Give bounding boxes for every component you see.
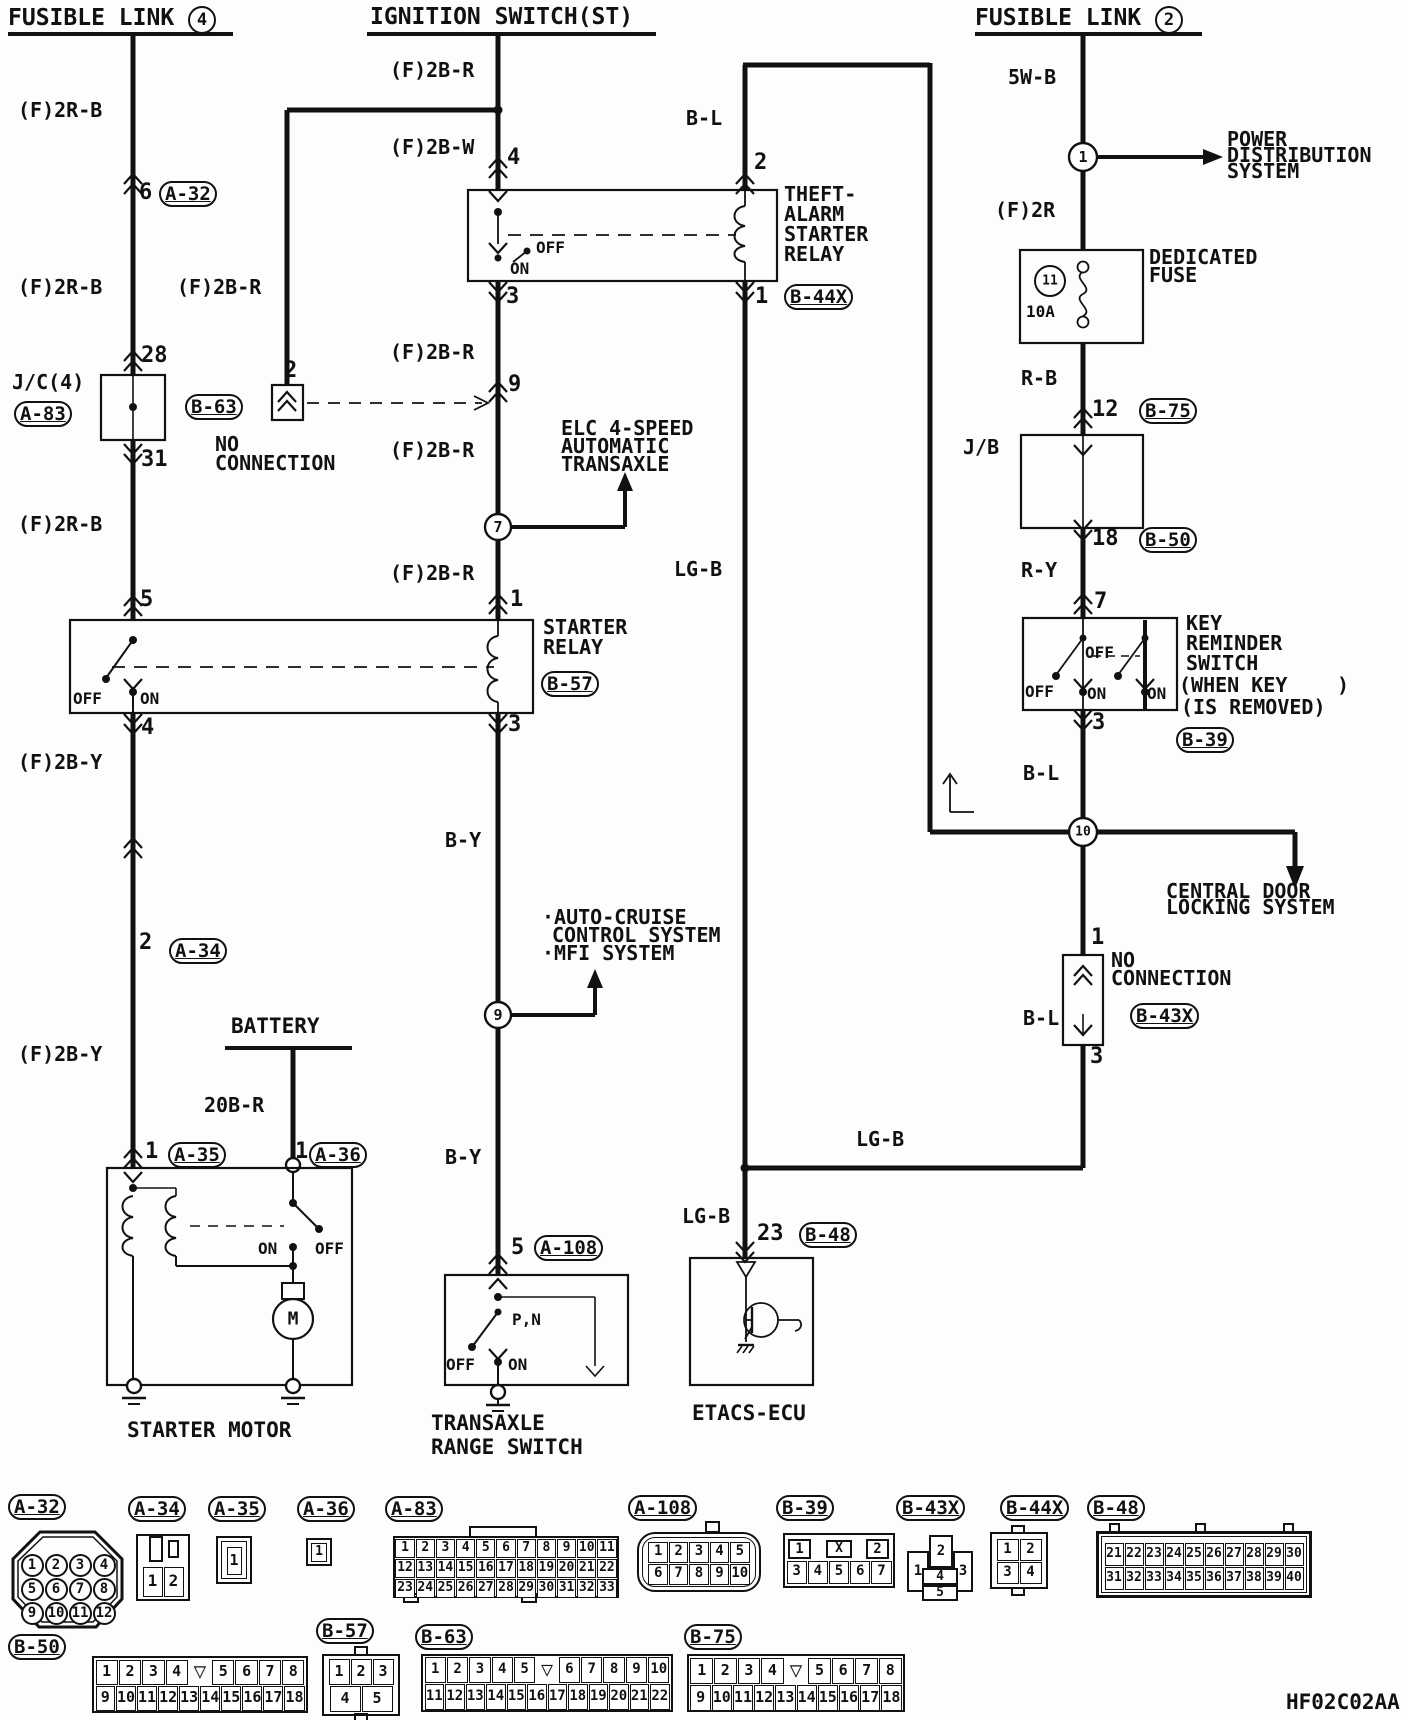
- pin-cell: 23: [1145, 1543, 1164, 1566]
- pin-cell: 26: [1205, 1543, 1224, 1566]
- connector-label-a108: A-108: [628, 1495, 697, 1521]
- transaxle-box: [445, 1275, 628, 1411]
- connector-b48-pins: 2122232425262728293031323334353637383940: [1104, 1542, 1304, 1590]
- pin-cell: 26: [456, 1579, 475, 1598]
- pin-cell: 24: [416, 1579, 435, 1598]
- connector-a108-pins: 12345678910: [648, 1541, 750, 1585]
- connector-label-b75: B-75: [684, 1624, 742, 1650]
- switch-off-label: OFF: [1025, 684, 1054, 700]
- junction-7: 7: [493, 518, 502, 536]
- pin-number: 1: [510, 589, 523, 611]
- pin-cell: 25: [436, 1579, 455, 1598]
- pin-cell: 34: [1165, 1567, 1184, 1590]
- pin-cell: ▽: [785, 1658, 808, 1684]
- pin-number: 1: [295, 1141, 308, 1163]
- pin-cell: 21: [1105, 1543, 1124, 1566]
- pin-number: 12: [1092, 399, 1119, 421]
- pin-cell: 3: [436, 1539, 455, 1558]
- circled-4: 4: [188, 6, 216, 34]
- connector-label-b39: B-39: [776, 1495, 834, 1521]
- pin-cell: 5: [808, 1658, 831, 1684]
- left-wire: [101, 34, 165, 1168]
- pin-cell: 17: [548, 1684, 568, 1710]
- pin-number: 9: [508, 374, 521, 396]
- pin-cell: 9: [21, 1602, 44, 1625]
- pin-cell: 32: [1125, 1567, 1144, 1590]
- pin-number: 18: [1092, 528, 1119, 550]
- pin-cell: 2: [447, 1657, 468, 1683]
- wire-label: (F)2R: [995, 200, 1055, 220]
- connector-label-a34: A-34: [128, 1496, 186, 1522]
- connector-label-a36: A-36: [297, 1496, 355, 1522]
- starter-motor-label: STARTER MOTOR: [127, 1420, 291, 1441]
- connector-label-a83: A-83: [385, 1496, 443, 1522]
- pin-number: 31: [141, 449, 168, 471]
- connector-b75-pins: 1234▽56789101112131415161718: [690, 1657, 902, 1711]
- pin-cell: 9: [626, 1657, 647, 1683]
- pin-cell: 6: [648, 1564, 667, 1585]
- battery-label: BATTERY: [231, 1016, 320, 1037]
- wire-label: (F)2B-Y: [18, 752, 102, 772]
- pin-cell: 24: [1165, 1543, 1184, 1566]
- pin-cell: 5: [922, 1585, 958, 1601]
- pin-cell: 9: [557, 1539, 576, 1558]
- pin-cell: 8: [603, 1657, 624, 1683]
- pin-number: 23: [757, 1223, 784, 1245]
- pin-cell: 8: [537, 1539, 556, 1558]
- wire-label: (F)2R-B: [18, 514, 102, 534]
- wire-label: (F)2B-R: [177, 277, 261, 297]
- wire-label: (F)2B-R: [390, 60, 474, 80]
- wire-label: (F)2B-R: [390, 342, 474, 362]
- pin-number: 2: [284, 360, 297, 382]
- pin-cell: 33: [1145, 1567, 1164, 1590]
- pin-cell: 9: [96, 1686, 115, 1711]
- connector-label-b63: B-63: [415, 1624, 473, 1650]
- relay-on-label: ON: [510, 261, 529, 277]
- pin-cell: 11: [137, 1686, 157, 1711]
- pin-cell: 3: [997, 1562, 1019, 1584]
- pin-cell: 13: [466, 1684, 486, 1710]
- pin-cell: 4: [492, 1657, 513, 1683]
- pin-cell: 29: [1265, 1543, 1284, 1566]
- elc-system-label: TRANSAXLE: [561, 454, 669, 474]
- pin-cell: 25: [1185, 1543, 1204, 1566]
- pin-cell: 13: [775, 1685, 795, 1711]
- pin-cell: 10: [45, 1602, 68, 1625]
- pin-cell: 2: [351, 1659, 372, 1685]
- pin-cell: 1: [648, 1542, 667, 1563]
- pin-cell: 4: [330, 1686, 361, 1712]
- pin-cell: 22: [597, 1559, 616, 1578]
- connector-b63-pins: 12345▽678910111213141516171819202122: [424, 1656, 670, 1710]
- pin-cell: 15: [456, 1559, 475, 1578]
- pin-cell: 7: [581, 1657, 602, 1683]
- pin-cell: 7: [259, 1660, 281, 1685]
- pin-cell: 12: [445, 1684, 465, 1710]
- pin-cell: 3: [787, 1561, 807, 1584]
- pin-cell: 6: [832, 1658, 855, 1684]
- pin-cell: 1: [227, 1547, 242, 1575]
- pin-cell: 4: [93, 1554, 116, 1577]
- pin-cell: 11: [425, 1684, 445, 1710]
- theft-relay-name: THEFT-: [784, 184, 856, 204]
- pin-cell: 13: [416, 1559, 435, 1578]
- pin-cell: 8: [282, 1660, 304, 1685]
- pin-cell: 16: [476, 1559, 495, 1578]
- pin-cell: 2: [714, 1658, 737, 1684]
- pin-cell: 40: [1285, 1567, 1304, 1590]
- wire-label: (F)2R-B: [18, 277, 102, 297]
- connector-ref-b75: B-75: [1139, 398, 1197, 424]
- connector-a35-pins: 1: [226, 1546, 242, 1575]
- pin-cell: 36: [1205, 1567, 1224, 1590]
- fuse-amp-label: 10A: [1026, 304, 1055, 320]
- no-connection-label: CONNECTION: [215, 453, 335, 473]
- pin-cell: 5: [362, 1686, 393, 1712]
- wire-label: (F)2B-R: [390, 563, 474, 583]
- pin-cell: 29: [517, 1579, 536, 1598]
- pin-cell: 4: [710, 1542, 729, 1563]
- pin-cell: 27: [476, 1579, 495, 1598]
- relay-off-label: OFF: [73, 691, 102, 707]
- motor-off-label: OFF: [315, 1241, 344, 1257]
- bl-wire: [743, 63, 930, 832]
- pin-cell: 4: [456, 1539, 475, 1558]
- connector-ref-a108: A-108: [534, 1235, 603, 1261]
- motor-m: M: [288, 1309, 299, 1330]
- pin-cell: 1: [425, 1657, 446, 1683]
- theft-relay-name: ALARM: [784, 204, 844, 224]
- pin-cell: 1: [311, 1543, 327, 1562]
- wire-label: 20B-R: [204, 1095, 264, 1115]
- connector-ref-a32: A-32: [159, 181, 217, 207]
- header-fusible-link-2: FUSIBLE LINK 2: [975, 6, 1183, 34]
- pin-cell: 1: [690, 1658, 713, 1684]
- pin-cell: 9: [710, 1564, 729, 1585]
- motor-on-label: ON: [258, 1241, 277, 1257]
- pin-cell: 5: [212, 1660, 234, 1685]
- pin-cell: 27: [1225, 1543, 1244, 1566]
- connector-label-b57: B-57: [316, 1618, 374, 1644]
- wire-label: R-B: [1021, 368, 1057, 388]
- pin-cell: 2: [45, 1554, 68, 1577]
- pin-cell: 10: [577, 1539, 596, 1558]
- dedicated-fuse-label: FUSE: [1149, 265, 1197, 285]
- pin-cell: 2: [669, 1542, 688, 1563]
- wire-label: R-Y: [1021, 560, 1057, 580]
- connector-ref-a83: A-83: [14, 401, 72, 427]
- connector-ref-b48: B-48: [799, 1222, 857, 1248]
- pin-cell: 3: [469, 1657, 490, 1683]
- pin-cell: 11: [69, 1602, 92, 1625]
- wire-label: LG-B: [856, 1129, 904, 1149]
- key-reminder-label: ): [1337, 675, 1349, 695]
- pin-cell: 18: [517, 1559, 536, 1578]
- pin-cell: 22: [1125, 1543, 1144, 1566]
- pin-cell: 2: [929, 1535, 953, 1568]
- connector-label-a32: A-32: [8, 1494, 66, 1520]
- pin-cell: 9: [690, 1685, 710, 1711]
- pin-cell: 15: [818, 1685, 838, 1711]
- transaxle-label: TRANSAXLE: [431, 1413, 545, 1434]
- pin-cell: 7: [517, 1539, 536, 1558]
- pin-cell: 5: [829, 1561, 849, 1584]
- pin-cell: 13: [179, 1686, 199, 1711]
- pin-cell: 3: [69, 1554, 92, 1577]
- pin-cell: 8: [93, 1578, 116, 1601]
- pin-number: 1: [145, 1141, 158, 1163]
- pin-cell-keyway: X: [826, 1540, 852, 1558]
- pin-cell: 28: [496, 1579, 515, 1598]
- fuse-11: 11: [1042, 274, 1058, 289]
- connector-ref-a35: A-35: [168, 1142, 226, 1168]
- junction-1: 1: [1078, 148, 1087, 166]
- pin-cell: 1: [21, 1554, 44, 1577]
- pin-cell: 15: [221, 1686, 241, 1711]
- pin-cell: 12: [93, 1602, 116, 1625]
- pin-cell: 7: [871, 1561, 891, 1584]
- pin-cell: 21: [577, 1559, 596, 1578]
- pin-cell: 3: [738, 1658, 761, 1684]
- pin-number: 3: [1092, 712, 1105, 734]
- pin-cell: 18: [284, 1686, 304, 1711]
- switch-on-label: ON: [1147, 686, 1166, 702]
- wire-label: B-L: [686, 108, 722, 128]
- pin-cell: 17: [860, 1685, 880, 1711]
- connector-a34-pins: 12: [140, 1566, 186, 1597]
- mfi-system-label: ·MFI SYSTEM: [542, 943, 674, 963]
- pin-cell: 33: [597, 1579, 616, 1598]
- wire-label: B-L: [1023, 763, 1059, 783]
- pin-cell: 5: [730, 1542, 749, 1563]
- key-reminder-label: SWITCH: [1186, 653, 1258, 673]
- pin-cell: 28: [1245, 1543, 1264, 1566]
- connector-ref-a36: A-36: [309, 1142, 367, 1168]
- pin-cell: 1: [96, 1660, 118, 1685]
- pin-number: 2: [139, 932, 152, 954]
- junction-10: 10: [1075, 825, 1091, 840]
- pin-number: 7: [1094, 591, 1107, 613]
- pin-number: 4: [507, 147, 520, 169]
- pin-cell: 1: [143, 1567, 163, 1597]
- pin-cell: 15: [507, 1684, 527, 1710]
- pin-cell: ▽: [536, 1657, 557, 1683]
- connector-label-b48: B-48: [1087, 1495, 1145, 1521]
- pin-cell: 17: [263, 1686, 283, 1711]
- pin-number: 3: [1090, 1046, 1103, 1068]
- relay-off-label: OFF: [446, 1357, 475, 1373]
- right-wire: [930, 34, 1304, 1168]
- pin-number: 5: [140, 589, 153, 611]
- key-reminder-label: (WHEN KEY: [1179, 675, 1287, 695]
- wire-label: (F)2B-Y: [18, 1044, 102, 1064]
- pin-cell: 6: [45, 1578, 68, 1601]
- pin-cell: 7: [69, 1578, 92, 1601]
- connector-a36-pins: 1: [310, 1542, 328, 1562]
- pin-cell: ▽: [189, 1660, 211, 1685]
- pin-cell: 14: [797, 1685, 817, 1711]
- switch-off-label: OFF: [1085, 645, 1114, 661]
- pin-cell: 3: [373, 1659, 394, 1685]
- pin-cell: 22: [650, 1684, 670, 1710]
- connector-b50-pins: 1234▽56789101112131415161718: [95, 1659, 305, 1711]
- junction-9: 9: [493, 1006, 502, 1024]
- pin-cell: 5: [476, 1539, 495, 1558]
- pin-cell: 10: [116, 1686, 136, 1711]
- pin-cell: 16: [839, 1685, 859, 1711]
- pin-cell: 11: [597, 1539, 616, 1558]
- pin-cell: 31: [1105, 1567, 1124, 1590]
- pin-cell: 6: [235, 1660, 257, 1685]
- theft-relay-name: RELAY: [784, 244, 844, 264]
- junction-label-jc4: J/C(4): [12, 372, 84, 392]
- relay-on-label: ON: [508, 1357, 527, 1373]
- wire-label: B-Y: [445, 830, 481, 850]
- pin-cell: 14: [486, 1684, 506, 1710]
- starter-relay-name: STARTER: [543, 617, 627, 637]
- pin-cell: 7: [855, 1658, 878, 1684]
- pin-cell: 1: [788, 1539, 811, 1559]
- pin-cell: 20: [609, 1684, 629, 1710]
- pin-cell: 3: [142, 1660, 164, 1685]
- pin-cell: 32: [577, 1579, 596, 1598]
- pin-cell: 12: [754, 1685, 774, 1711]
- diagram-code: HF02C02AA: [1286, 1692, 1400, 1713]
- pin-number: 3: [508, 714, 521, 736]
- connector-ref-a34: A-34: [169, 938, 227, 964]
- connector-a32-pins: 123456789101112: [14, 1553, 122, 1625]
- pin-cell: 14: [200, 1686, 220, 1711]
- pin-number: 1: [755, 286, 768, 308]
- pin-cell: 18: [568, 1684, 588, 1710]
- pin-cell: 23: [395, 1579, 414, 1598]
- pin-cell: 2: [416, 1539, 435, 1558]
- connector-ref-b63: B-63: [185, 394, 243, 420]
- connector-label-a35: A-35: [208, 1496, 266, 1522]
- pin-cell: 1: [395, 1539, 414, 1558]
- power-dist-label: SYSTEM: [1227, 161, 1299, 181]
- wire-label: (F)2B-W: [390, 137, 474, 157]
- pin-cell: 1: [329, 1659, 350, 1685]
- pin-number: 28: [141, 345, 168, 367]
- pin-number: 6: [139, 182, 152, 204]
- starter-relay-name: RELAY: [543, 637, 603, 657]
- pin-cell: 4: [166, 1660, 188, 1685]
- etacs-box: [690, 1258, 813, 1385]
- pin-cell: 4: [808, 1561, 828, 1584]
- pin-cell: 31: [557, 1579, 576, 1598]
- pin-cell: 11: [733, 1685, 753, 1711]
- starter-motor-box: [107, 1168, 352, 1404]
- relay-off-label: OFF: [536, 240, 565, 256]
- pin-cell: 7: [669, 1564, 688, 1585]
- pin-cell: 6: [559, 1657, 580, 1683]
- connector-b39-row2: 34567: [786, 1560, 892, 1584]
- pin-cell: 35: [1185, 1567, 1204, 1590]
- pin-cell: 4: [761, 1658, 784, 1684]
- pin-cell: 2: [164, 1567, 184, 1597]
- pin-number: 1: [1091, 927, 1104, 949]
- pin-cell: 18: [881, 1685, 901, 1711]
- switch-on-label: ON: [1087, 686, 1106, 702]
- connector-b57-pins: 12345: [326, 1658, 396, 1712]
- pin-cell: 14: [436, 1559, 455, 1578]
- key-reminder-label: (IS REMOVED): [1181, 697, 1326, 717]
- pin-number: 2: [754, 152, 767, 174]
- wire-label: (F)2B-R: [390, 440, 474, 460]
- pin-cell: 2: [866, 1539, 889, 1559]
- pin-cell: 19: [589, 1684, 609, 1710]
- connector-ref-b50: B-50: [1139, 527, 1197, 553]
- connector-b44x-pins: 1234: [996, 1538, 1042, 1584]
- pin-cell: 5: [514, 1657, 535, 1683]
- header-fusible-link-4: FUSIBLE LINK 4: [8, 6, 216, 34]
- pin-cell: 17: [496, 1559, 515, 1578]
- pin-cell: 16: [242, 1686, 262, 1711]
- pin-cell: 1: [997, 1539, 1019, 1561]
- key-reminder-label: KEY: [1186, 613, 1222, 633]
- wire-label: LG-B: [674, 559, 722, 579]
- central-door-label: LOCKING SYSTEM: [1166, 897, 1335, 917]
- connector-label-b43x: B-43X: [896, 1495, 965, 1521]
- pin-cell: 12: [158, 1686, 178, 1711]
- pin-cell: 6: [850, 1561, 870, 1584]
- pin-cell: 4: [922, 1568, 958, 1585]
- pin-cell: 4: [1020, 1562, 1042, 1584]
- pin-number: 4: [141, 717, 154, 739]
- header-ignition-switch: IGNITION SWITCH(ST): [370, 6, 633, 29]
- pin-cell: 12: [395, 1559, 414, 1578]
- pin-cell: 19: [537, 1559, 556, 1578]
- pin-cell: 8: [689, 1564, 708, 1585]
- connector-a83-pins: 1234567891011121314151617181920212223242…: [395, 1538, 617, 1598]
- wire-label: B-L: [1023, 1008, 1059, 1028]
- pin-cell: 30: [1285, 1543, 1304, 1566]
- pin-cell: 20: [557, 1559, 576, 1578]
- circled-2: 2: [1155, 6, 1183, 34]
- pin-cell: 10: [712, 1685, 732, 1711]
- pin-cell: 2: [1020, 1539, 1042, 1561]
- wire-label: 5W-B: [1008, 67, 1056, 87]
- pin-cell: 30: [537, 1579, 556, 1598]
- no-connection-label: CONNECTION: [1111, 968, 1231, 988]
- pin-cell: 6: [496, 1539, 515, 1558]
- pin-cell: 3: [689, 1542, 708, 1563]
- theft-relay-name: STARTER: [784, 224, 868, 244]
- jb-label: J/B: [963, 437, 999, 457]
- transaxle-label: RANGE SWITCH: [431, 1437, 583, 1458]
- pin-cell: 5: [21, 1578, 44, 1601]
- connector-ref-b43x: B-43X: [1130, 1003, 1199, 1029]
- pin-cell: 8: [879, 1658, 902, 1684]
- wire-label: (F)2R-B: [18, 100, 102, 120]
- pin-number: 3: [506, 286, 519, 308]
- etacs-ecu-label: ETACS-ECU: [692, 1403, 806, 1424]
- connector-ref-b44x: B-44X: [784, 284, 853, 310]
- connector-ref-b39: B-39: [1176, 727, 1234, 753]
- connector-ref-b57: B-57: [541, 671, 599, 697]
- connector-label-b44x: B-44X: [1000, 1495, 1069, 1521]
- pin-cell: 10: [730, 1564, 749, 1585]
- pin-cell: 2: [119, 1660, 141, 1685]
- pin-cell: 39: [1265, 1567, 1284, 1590]
- pin-cell: 10: [648, 1657, 669, 1683]
- connector-label-b50: B-50: [8, 1634, 66, 1660]
- pin-cell: 16: [527, 1684, 547, 1710]
- key-reminder-label: REMINDER: [1186, 633, 1282, 653]
- wire-label: B-Y: [445, 1147, 481, 1167]
